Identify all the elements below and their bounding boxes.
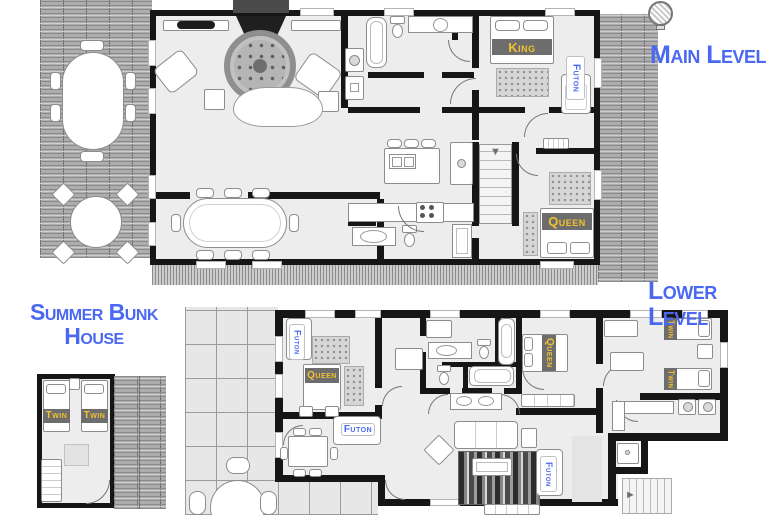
nightstand (69, 378, 80, 390)
pillow (84, 384, 104, 394)
deck-seam (139, 376, 140, 509)
bunk-house-plan: Summer Bunk House Twin Twin (0, 0, 780, 515)
area-rug (64, 444, 89, 466)
bunk-twin-right-label: Twin (81, 409, 108, 423)
bunk-deck (114, 376, 166, 509)
armchair (41, 459, 62, 502)
bunk-twin-left-label: Twin (43, 409, 70, 423)
floor-plan-image: ▼ King Futon Queen Main Level (0, 0, 780, 515)
bunk-house-title-line2: House (18, 324, 170, 348)
bunk-house-title-line1: Summer Bunk (18, 300, 170, 324)
bunk-house-title: Summer Bunk House (18, 300, 170, 348)
pillow (46, 384, 66, 394)
